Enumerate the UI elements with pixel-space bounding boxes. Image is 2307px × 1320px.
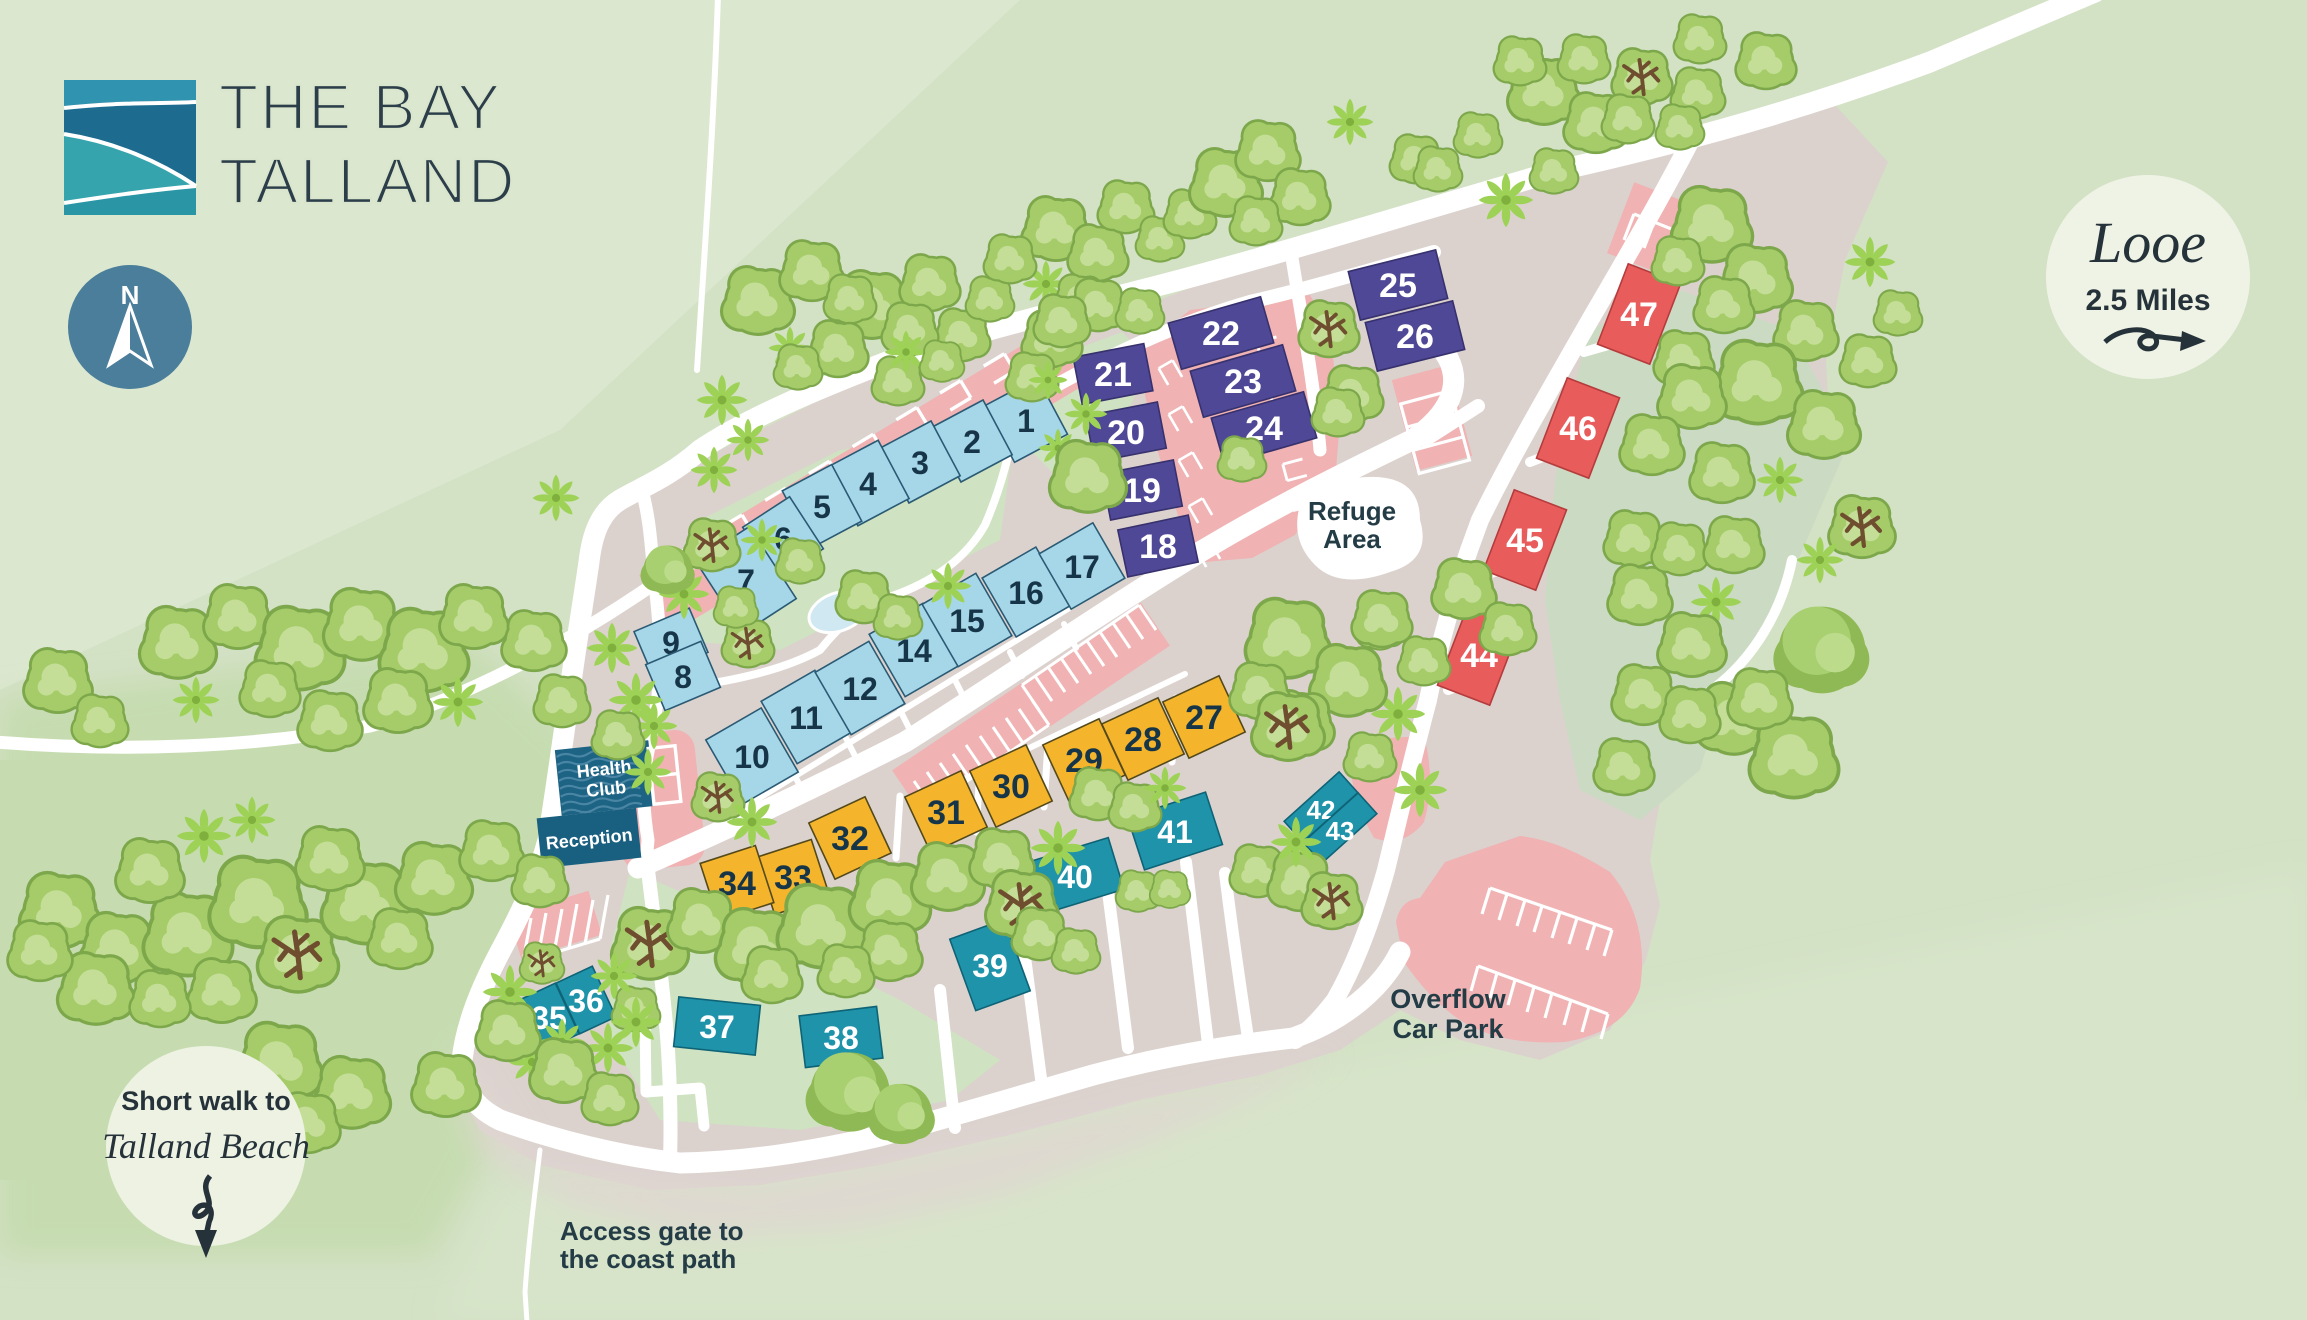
svg-text:25: 25 [1379,267,1417,305]
svg-text:18: 18 [1139,528,1177,566]
svg-text:30: 30 [992,768,1030,806]
svg-text:16: 16 [1008,575,1044,611]
svg-text:26: 26 [1396,318,1434,356]
svg-text:37: 37 [699,1009,735,1045]
svg-text:2.5 Miles: 2.5 Miles [2085,284,2210,317]
svg-text:Short walk to: Short walk to [121,1086,291,1116]
svg-text:8: 8 [674,659,692,695]
svg-text:2: 2 [963,424,981,460]
svg-text:45: 45 [1506,522,1544,560]
svg-text:Access gate to: Access gate to [560,1216,744,1246]
svg-text:38: 38 [823,1020,859,1056]
svg-text:27: 27 [1185,699,1223,737]
svg-text:23: 23 [1224,363,1262,401]
svg-text:1: 1 [1017,403,1035,439]
svg-text:21: 21 [1094,356,1132,394]
svg-text:46: 46 [1559,410,1597,448]
svg-text:28: 28 [1124,721,1162,759]
svg-text:5: 5 [813,489,831,525]
svg-text:47: 47 [1620,296,1658,334]
svg-text:4: 4 [859,466,877,502]
svg-text:31: 31 [927,794,965,832]
svg-text:36: 36 [568,983,604,1019]
svg-text:10: 10 [734,739,770,775]
svg-text:the coast path: the coast path [560,1244,736,1274]
svg-text:41: 41 [1157,814,1193,850]
svg-text:32: 32 [831,820,869,858]
svg-text:15: 15 [949,603,985,639]
svg-text:12: 12 [842,671,878,707]
svg-text:Car Park: Car Park [1392,1014,1504,1044]
svg-text:19: 19 [1123,472,1161,510]
svg-text:39: 39 [972,948,1008,984]
svg-text:Club: Club [585,777,627,801]
svg-text:22: 22 [1202,315,1240,353]
svg-text:Refuge: Refuge [1308,496,1396,526]
svg-text:Area: Area [1323,524,1381,554]
svg-text:17: 17 [1064,549,1100,585]
svg-text:Looe: Looe [2089,210,2206,275]
svg-text:THE BAY: THE BAY [219,71,502,143]
svg-text:43: 43 [1326,816,1355,846]
svg-text:Talland Beach: Talland Beach [102,1126,310,1166]
svg-text:3: 3 [911,445,929,481]
svg-text:11: 11 [789,700,823,736]
svg-text:TALLAND: TALLAND [219,145,516,217]
svg-text:Overflow: Overflow [1390,984,1507,1014]
